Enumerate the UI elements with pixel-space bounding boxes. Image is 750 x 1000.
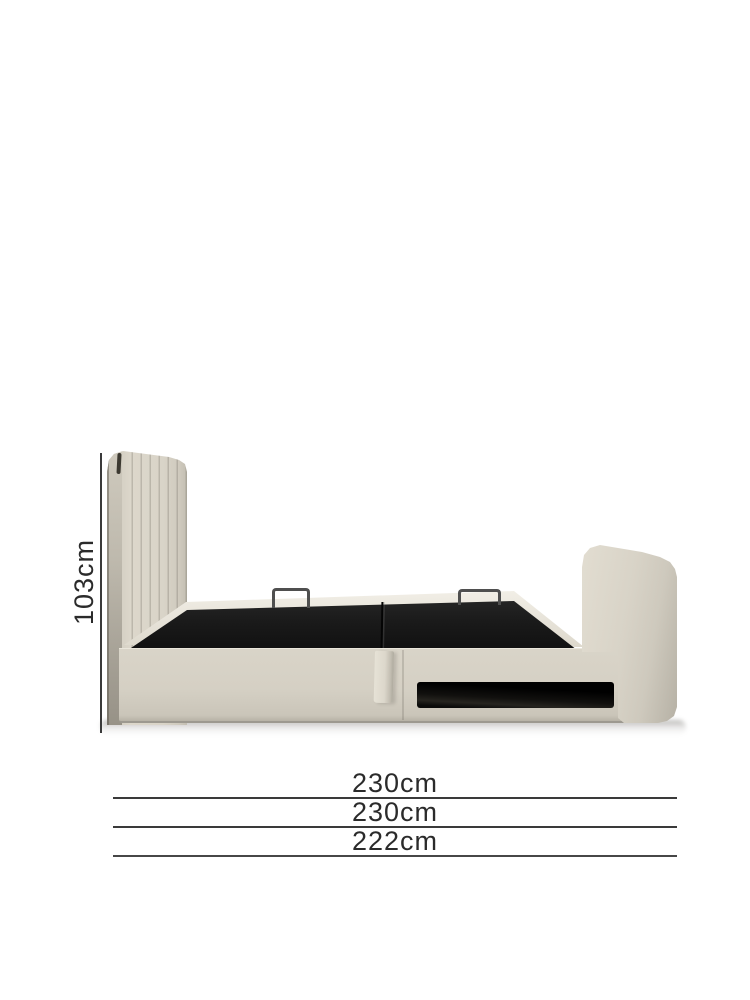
recessed-handle-opening xyxy=(417,682,614,708)
width-dimension-label-1: 230cm xyxy=(113,769,677,797)
lift-hinge-handle-left xyxy=(272,588,310,608)
width-dimension-label-2: 230cm xyxy=(113,798,677,826)
fabric-pull-strap xyxy=(374,651,394,703)
width-dimension-label-3: 222cm xyxy=(113,827,677,855)
lift-hinge-handle-right xyxy=(458,589,501,605)
width-dimension-line-3 xyxy=(113,855,677,857)
base-panel-seam xyxy=(402,650,404,720)
product-dimension-diagram: 103cm 230cm 230cm 222cm xyxy=(0,0,750,1000)
height-dimension-line xyxy=(100,453,102,733)
height-dimension-label: 103cm xyxy=(70,539,98,625)
